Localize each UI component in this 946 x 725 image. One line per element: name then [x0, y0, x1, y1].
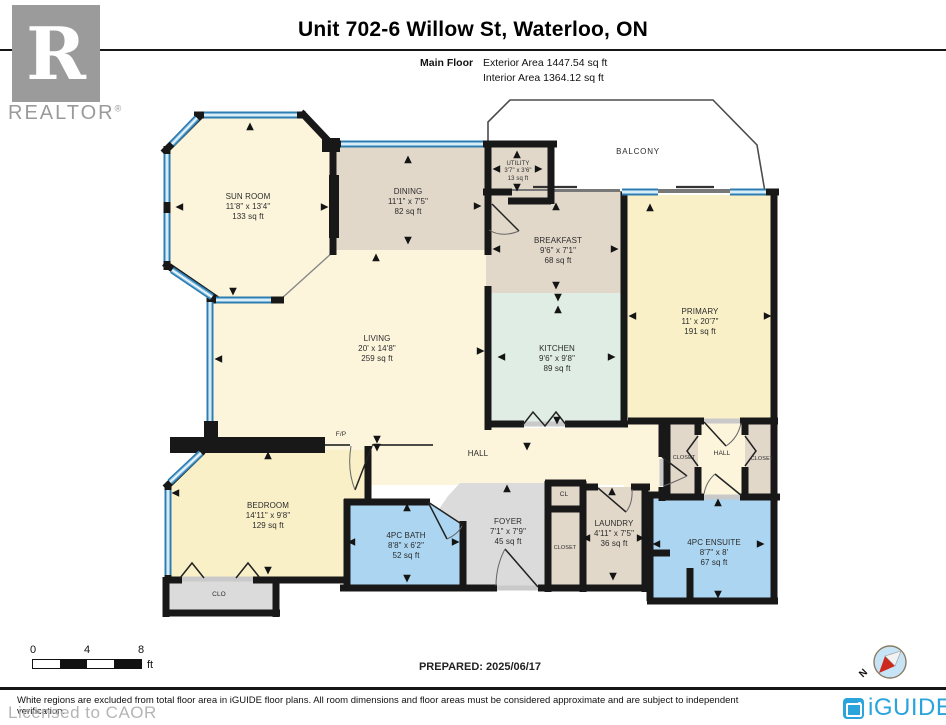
room-dims: 8'7" x 8' — [687, 548, 741, 558]
fireplace-label: F/P — [336, 431, 346, 439]
prepared-date: PREPARED: 2025/06/17 — [380, 661, 580, 673]
room-name: CL — [560, 491, 569, 499]
room-dims: 7'1" x 7'9" — [490, 527, 526, 537]
room-name: 4PC BATH — [386, 531, 425, 541]
room-name: LAUNDRY — [594, 519, 634, 529]
scale-tick-0: 0 — [30, 644, 36, 656]
room-label-bath: 4PC BATH 8'8" x 6'2" 52 sq ft — [386, 531, 425, 560]
room-name: HALL — [468, 449, 488, 459]
footer-divider — [0, 687, 946, 690]
room-area: 133 sq ft — [226, 212, 271, 222]
room-label-primary: PRIMARY 11' x 20'7" 191 sq ft — [681, 307, 718, 336]
room-area: 259 sq ft — [358, 354, 396, 364]
room-name: DINING — [388, 187, 428, 197]
room-name: F/P — [336, 431, 346, 439]
scale-tick-8: 8 — [138, 644, 144, 656]
room-name: UTILITY — [504, 161, 531, 168]
room-name: CLOSET — [673, 455, 696, 462]
room-label-foyer: FOYER 7'1" x 7'9" 45 sq ft — [490, 517, 526, 546]
room-label-ensuite: 4PC ENSUITE 8'7" x 8' 67 sq ft — [687, 538, 741, 567]
room-label-closet-right: CLOSET — [751, 456, 774, 463]
room-label-balcony: BALCONY — [616, 147, 660, 157]
room-area: 82 sq ft — [388, 207, 428, 217]
room-label-clo: CLO — [212, 591, 226, 599]
compass-icon — [867, 639, 913, 685]
room-name: BEDROOM — [246, 501, 291, 511]
iguide-logo-icon — [843, 698, 864, 719]
room-name: CLO — [212, 591, 226, 599]
room-name: CLOSET — [751, 456, 774, 463]
room-name: HALL — [714, 450, 731, 458]
scale-unit: ft — [147, 659, 153, 671]
room-area: 13 sq ft — [504, 176, 531, 183]
licensed-text: Licensed to CAOR — [8, 703, 157, 723]
floors — [166, 100, 777, 612]
room-dims: 14'11" x 9'8" — [246, 511, 291, 521]
room-dims: 3'7" x 3'6" — [504, 168, 531, 175]
room-dims: 11'8" x 13'4" — [226, 202, 271, 212]
room-label-hall-primary: HALL — [714, 450, 731, 458]
room-name: PRIMARY — [681, 307, 718, 317]
room-area: 36 sq ft — [594, 539, 634, 549]
room-dims: 4'11" x 7'5" — [594, 529, 634, 539]
iguide-logo: iGUIDE — [843, 694, 946, 722]
room-area: 45 sq ft — [490, 537, 526, 547]
room-area: 68 sq ft — [534, 256, 582, 266]
room-label-sun-room: SUN ROOM 11'8" x 13'4" 133 sq ft — [226, 192, 271, 221]
room-name: BREAKFAST — [534, 236, 582, 246]
room-label-cl: CL — [560, 491, 569, 499]
room-area: 67 sq ft — [687, 558, 741, 568]
room-label-laundry: LAUNDRY 4'11" x 7'5" 36 sq ft — [594, 519, 634, 548]
room-area: 191 sq ft — [681, 327, 718, 337]
room-name: SUN ROOM — [226, 192, 271, 202]
scale-tick-4: 4 — [84, 644, 90, 656]
room-name: FOYER — [490, 517, 526, 527]
room-label-bedroom: BEDROOM 14'11" x 9'8" 129 sq ft — [246, 501, 291, 530]
room-dims: 8'8" x 6'2" — [386, 541, 425, 551]
room-label-closet-left: CLOSET — [673, 455, 696, 462]
room-name: CLOSET — [554, 545, 577, 552]
iguide-logo-text: iGUIDE — [868, 694, 946, 722]
room-label-dining: DINING 11'1" x 7'5" 82 sq ft — [388, 187, 428, 216]
room-dims: 11' x 20'7" — [681, 317, 718, 327]
floor-plan — [0, 0, 946, 725]
room-label-kitchen: KITCHEN 9'6" x 9'8" 89 sq ft — [539, 344, 575, 373]
room-area: 52 sq ft — [386, 551, 425, 561]
room-label-closet-foyer: CLOSET — [554, 545, 577, 552]
room-label-utility: UTILITY 3'7" x 3'6" 13 sq ft — [504, 161, 531, 183]
room-name: KITCHEN — [539, 344, 575, 354]
room-name: 4PC ENSUITE — [687, 538, 741, 548]
floor-plan-page: R REALTOR® Unit 702-6 Willow St, Waterlo… — [0, 0, 946, 725]
room-label-living: LIVING 20' x 14'8" 259 sq ft — [358, 334, 396, 363]
scale-bar — [32, 659, 142, 669]
room-label-hall: HALL — [468, 449, 488, 459]
room-area: 129 sq ft — [246, 521, 291, 531]
room-name: LIVING — [358, 334, 396, 344]
room-area: 89 sq ft — [539, 364, 575, 374]
room-dims: 9'6" x 7'1" — [534, 246, 582, 256]
room-dims: 9'6" x 9'8" — [539, 354, 575, 364]
room-label-breakfast: BREAKFAST 9'6" x 7'1" 68 sq ft — [534, 236, 582, 265]
room-dims: 11'1" x 7'5" — [388, 197, 428, 207]
room-name: BALCONY — [616, 147, 660, 157]
room-dims: 20' x 14'8" — [358, 344, 396, 354]
